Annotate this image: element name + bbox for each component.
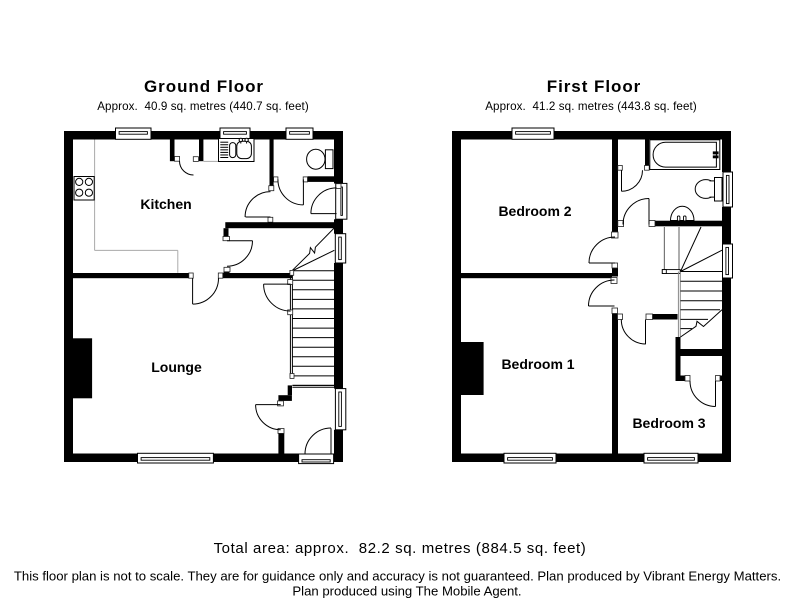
svg-text:This floor plan is not to scal: This floor plan is not to scale. They ar… <box>14 569 781 584</box>
svg-text:Approx. 41.2 sq. metres (443.: Approx. 41.2 sq. metres (443.8 sq. feet) <box>485 100 697 113</box>
svg-text:Lounge: Lounge <box>151 359 202 375</box>
svg-text:Bedroom 3: Bedroom 3 <box>632 415 705 431</box>
svg-text:Bedroom 1: Bedroom 1 <box>501 356 574 372</box>
svg-text:Approx. 40.9 sq. metres (440.: Approx. 40.9 sq. metres (440.7 sq. feet) <box>97 100 309 113</box>
svg-text:Bedroom 2: Bedroom 2 <box>498 203 571 219</box>
svg-text:Total area: approx. 82.2 sq.: Total area: approx. 82.2 sq. metres (884… <box>214 540 587 557</box>
svg-text:First Floor: First Floor <box>547 77 642 96</box>
svg-text:Kitchen: Kitchen <box>140 196 191 212</box>
svg-text:Plan produced using The Mobile: Plan produced using The Mobile Agent. <box>292 583 521 598</box>
svg-text:Ground Floor: Ground Floor <box>144 77 264 96</box>
